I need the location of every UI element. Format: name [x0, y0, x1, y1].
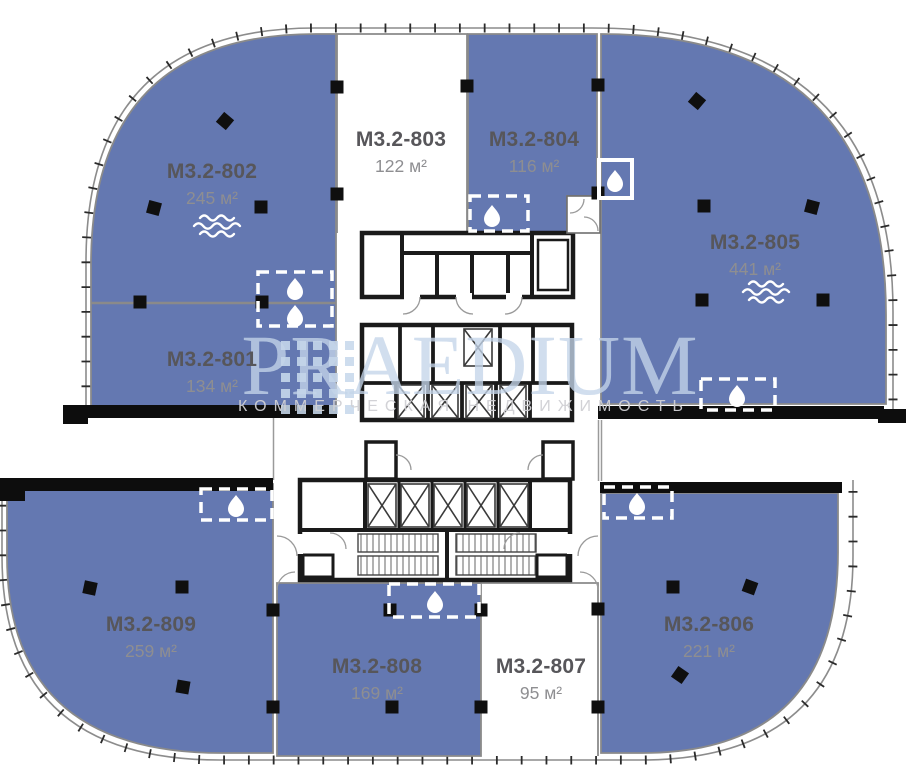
unit-shape-m3.2-803[interactable] [337, 34, 467, 233]
unit-shape-m3.2-806[interactable] [601, 493, 838, 753]
unit-shape-m3.2-807[interactable] [481, 583, 598, 756]
core-lower-block [277, 480, 598, 590]
unit-shape-m3.2-805[interactable] [601, 34, 886, 404]
core-gap-stubs [366, 442, 573, 479]
core-middle-block [362, 325, 572, 420]
floor-plan-canvas [0, 0, 908, 766]
floor-plan: PRAEDIUM КОММЕРЧЕСКАЯ НЕДВИЖИМОСТЬ M3.2-… [0, 0, 908, 766]
core-upper-block [362, 233, 573, 314]
unit-shape-m3.2-808[interactable] [277, 583, 481, 756]
unit-shape-m3.2-809[interactable] [7, 484, 273, 753]
core-vestibule [567, 196, 600, 233]
